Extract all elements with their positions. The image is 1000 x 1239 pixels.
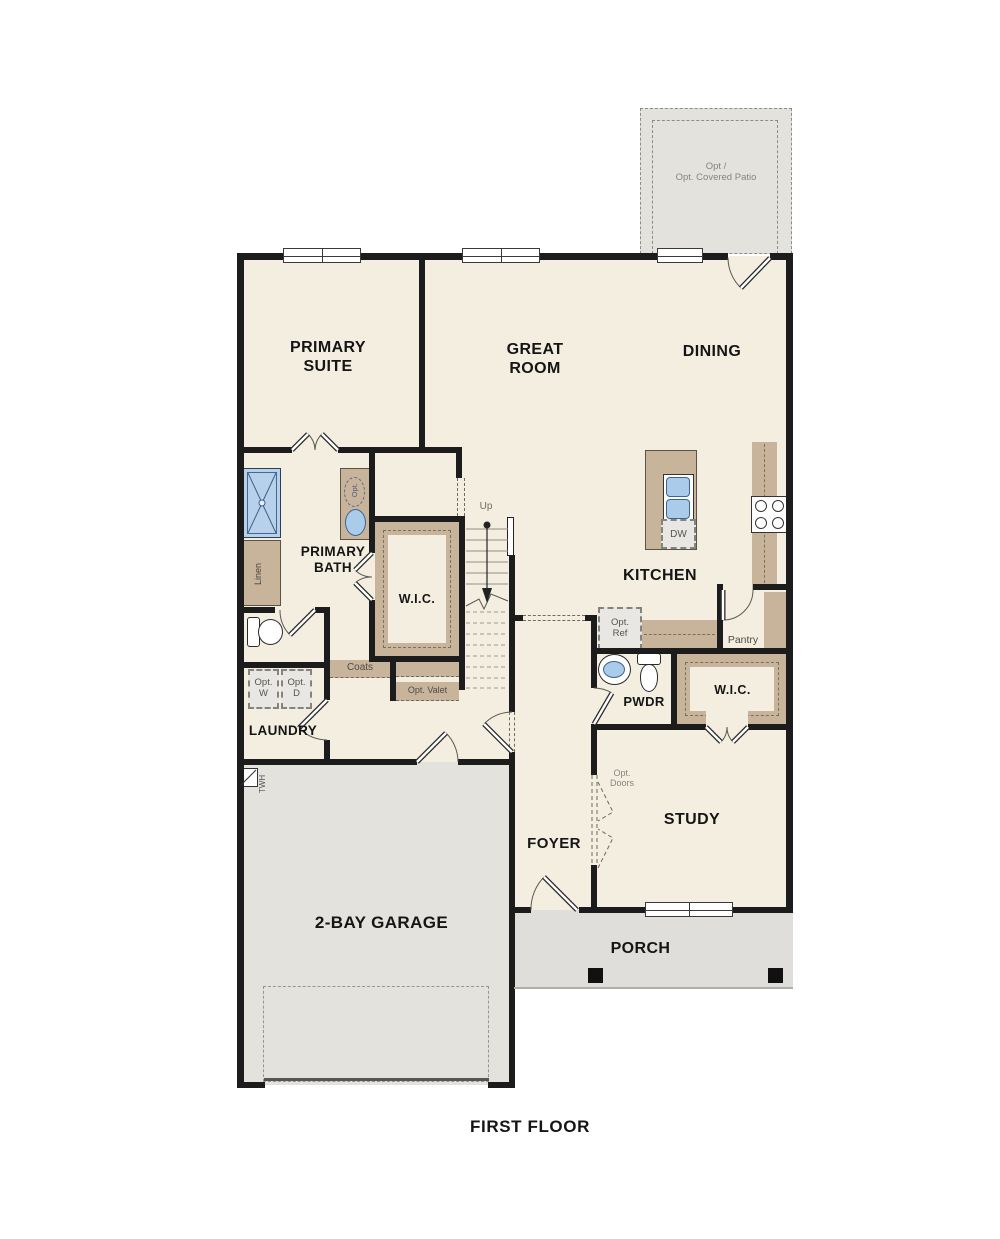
opt-vanity-label: Opt.	[351, 476, 359, 504]
patio-label-2: Opt. Covered Patio	[640, 173, 792, 184]
window-dining	[657, 248, 703, 263]
wall-study-west-a	[591, 730, 597, 775]
wall-study-top-b	[748, 724, 793, 730]
kitchen-label: KITCHEN	[598, 567, 722, 586]
laundry-label: LAUNDRY	[237, 723, 329, 739]
pwdr-sink-bowl	[603, 661, 625, 678]
cooktop-burner-2	[772, 500, 784, 512]
wall-pwdr-east	[671, 654, 677, 724]
wall-bath-wic-a	[369, 453, 375, 553]
wall-hall-bottom-a	[237, 759, 417, 765]
opt-doors-label: Opt. Doors	[600, 768, 644, 788]
cooktop-burner-3	[755, 517, 767, 529]
patio-label: Opt / Opt. Covered Patio	[640, 162, 792, 183]
optional-dryer-label-2: D	[283, 688, 310, 699]
wic-study-label: W.I.C.	[690, 683, 775, 698]
great-room-label: GREAT ROOM	[473, 341, 597, 379]
opt-valet-label: Opt. Valet	[396, 685, 459, 695]
valet-shelf	[396, 660, 459, 677]
window-primary-suite	[283, 248, 361, 263]
pwdr-label: PWDR	[608, 694, 680, 709]
pwdr-toilet-bowl	[640, 664, 658, 692]
study-label: STUDY	[648, 811, 736, 830]
patio-inner-dashed	[652, 120, 778, 254]
wall-study-top-a	[591, 724, 706, 730]
vanity-sink	[345, 509, 366, 536]
dishwasher-label: DW	[670, 529, 687, 540]
wall-wc-east-a	[324, 607, 330, 700]
island-sink-bowl-1	[666, 477, 690, 497]
dishwasher: DW	[661, 519, 696, 549]
porch-post-left	[588, 968, 603, 983]
porch-edge	[514, 987, 793, 989]
opening-greatroom-foyer	[523, 615, 585, 621]
opening-stair-hall	[457, 478, 465, 516]
optional-washer-label-1: Opt.	[250, 677, 277, 688]
garage-label: 2-BAY GARAGE	[300, 913, 463, 933]
floor-plan: DW Opt. W Opt. D Opt. Ref	[0, 0, 1000, 1239]
wall-greatroom-south-a	[515, 615, 523, 621]
wic-study-door-gap	[706, 711, 748, 724]
optional-fridge-label-2: Ref	[600, 628, 640, 639]
wc-toilet-bowl	[258, 619, 283, 645]
garage-apron-dashed	[263, 986, 489, 1082]
twh-label: TWH	[259, 767, 268, 801]
wall-stair-left	[459, 516, 465, 690]
wall-stair-top-stub	[456, 453, 462, 478]
cooktop-burner-1	[755, 500, 767, 512]
porch-post-right	[768, 968, 783, 983]
optional-washer: Opt. W	[248, 669, 279, 709]
wall-garage-bottom-a	[237, 1082, 265, 1088]
garage-door	[264, 1078, 489, 1081]
wic-primary-label: W.I.C.	[375, 592, 459, 607]
porch-label: PORCH	[598, 940, 683, 959]
optional-washer-label-2: W	[250, 688, 277, 699]
up-label: Up	[468, 501, 504, 512]
wall-suite-south-b	[338, 447, 462, 453]
wall-left	[237, 253, 244, 1088]
dining-label: DINING	[648, 343, 776, 362]
island-sink-bowl-2	[666, 499, 690, 519]
window-great-room	[462, 248, 540, 263]
kitchen-lower-counter-dash	[644, 634, 715, 636]
plan-title: FIRST FLOOR	[428, 1117, 632, 1137]
cooktop-burner-4	[772, 517, 784, 529]
optional-fridge: Opt. Ref	[598, 607, 642, 650]
wall-wc-top-a	[243, 607, 275, 613]
pantry-label: Pantry	[710, 635, 776, 647]
coats-label: Coats	[330, 662, 390, 673]
window-study	[645, 902, 733, 917]
wall-suite-east	[419, 253, 425, 453]
wall-bath-wic-b	[369, 600, 375, 662]
foyer-label: FOYER	[514, 835, 594, 853]
linen-label: Linen	[253, 551, 263, 597]
wall-study-west-b	[591, 865, 597, 913]
wall-garage-bottom-b	[488, 1082, 515, 1088]
wall-pantry-top	[753, 584, 793, 590]
wall-foyer-left-b	[509, 752, 515, 907]
stair-rail	[507, 517, 514, 556]
shower-inner	[247, 472, 277, 534]
primary-suite-label: PRIMARY SUITE	[253, 339, 403, 377]
wall-foyer-left-a	[509, 555, 515, 712]
wall-wc-laundry	[243, 662, 330, 668]
optional-dryer: Opt. D	[281, 669, 312, 709]
wic-primary-shelving	[375, 522, 459, 656]
wall-suite-south-a	[243, 447, 292, 453]
optional-fridge-label-1: Opt.	[600, 617, 640, 628]
wall-hall-bottom-b	[458, 759, 515, 765]
wall-kitchen-south	[591, 648, 793, 654]
opening-hall-foyer	[509, 712, 515, 752]
wall-wic-top	[369, 516, 465, 522]
wall-right	[786, 253, 793, 913]
optional-dryer-label-1: Opt.	[283, 677, 310, 688]
primary-bath-label: PRIMARY BATH	[286, 544, 380, 576]
